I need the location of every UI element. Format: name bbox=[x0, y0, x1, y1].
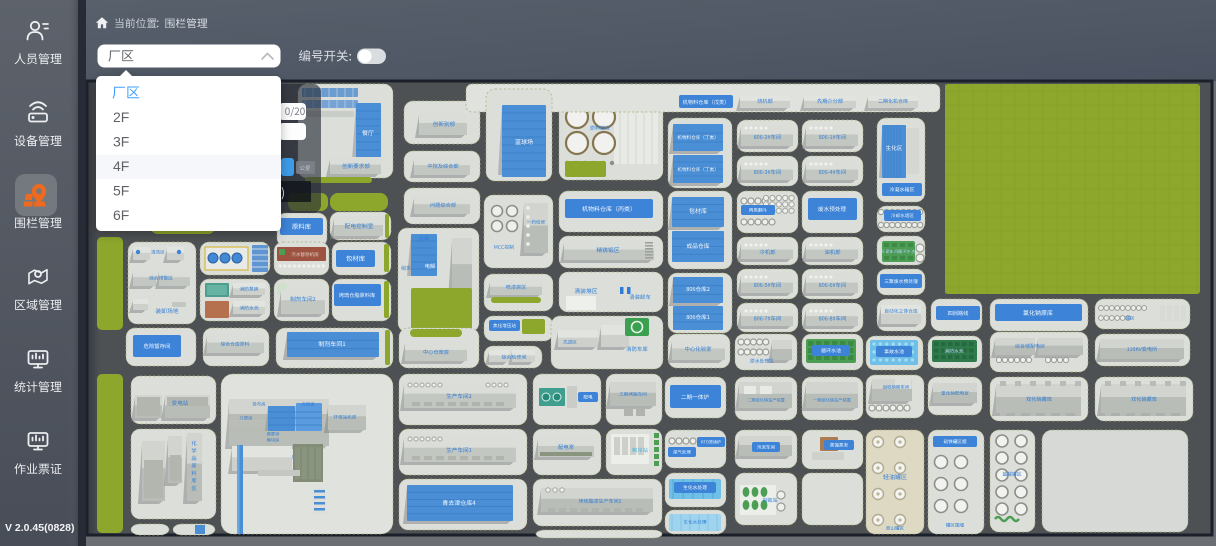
svg-text:V 2.0.45(0828): V 2.0.45(0828) bbox=[5, 522, 74, 534]
svg-text:5F: 5F bbox=[113, 183, 129, 199]
svg-text:4F: 4F bbox=[113, 158, 129, 174]
svg-text:2F: 2F bbox=[113, 109, 129, 125]
svg-text:6F: 6F bbox=[113, 207, 129, 223]
svg-text:3F: 3F bbox=[113, 134, 129, 150]
